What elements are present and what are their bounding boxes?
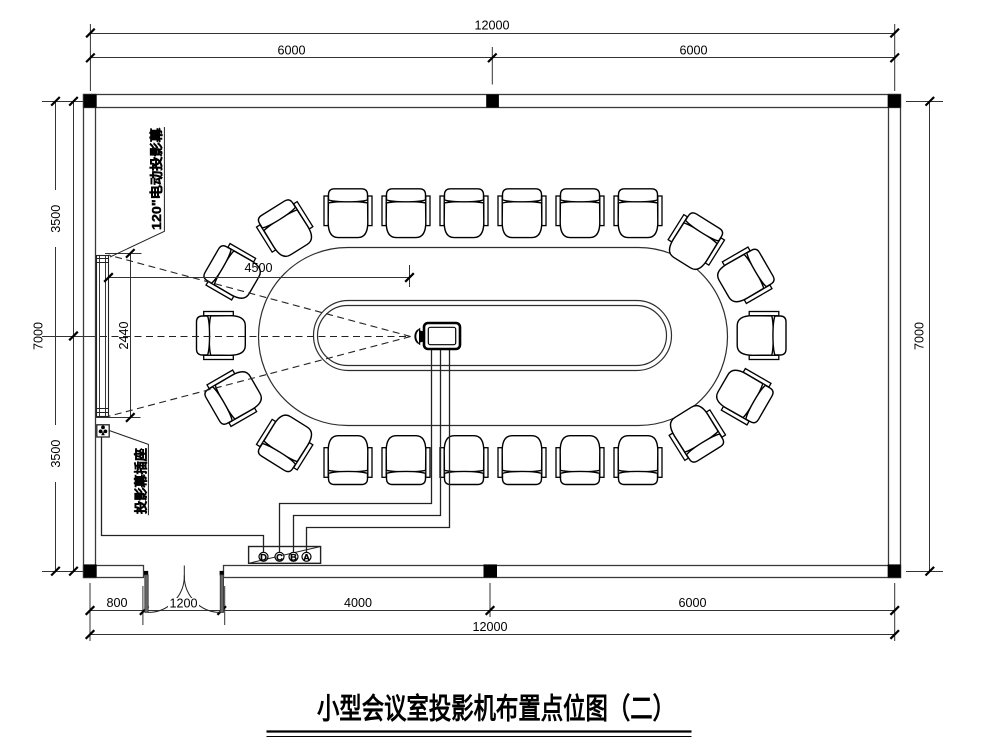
svg-text:投影幕插座: 投影幕插座 <box>133 448 149 514</box>
svg-text:4500: 4500 <box>244 261 272 275</box>
svg-text:12000: 12000 <box>474 19 509 33</box>
svg-text:2440: 2440 <box>117 321 131 349</box>
svg-text:800: 800 <box>106 596 127 610</box>
svg-text:4000: 4000 <box>344 596 372 610</box>
svg-text:B: B <box>290 551 297 562</box>
svg-text:A: A <box>303 551 310 562</box>
svg-text:6000: 6000 <box>277 43 305 57</box>
svg-text:C: C <box>276 551 283 562</box>
svg-text:7000: 7000 <box>913 322 927 350</box>
svg-text:3500: 3500 <box>49 440 63 468</box>
svg-text:7000: 7000 <box>32 322 46 350</box>
svg-text:120"电动投影幕: 120"电动投影幕 <box>148 127 164 230</box>
svg-text:小型会议室投影机布置点位图（二）: 小型会议室投影机布置点位图（二） <box>317 692 675 726</box>
svg-text:1200: 1200 <box>169 597 197 611</box>
svg-text:6000: 6000 <box>679 43 707 57</box>
svg-text:D: D <box>260 551 267 562</box>
svg-text:6000: 6000 <box>678 596 706 610</box>
svg-text:3500: 3500 <box>49 205 63 233</box>
svg-text:12000: 12000 <box>472 620 507 634</box>
